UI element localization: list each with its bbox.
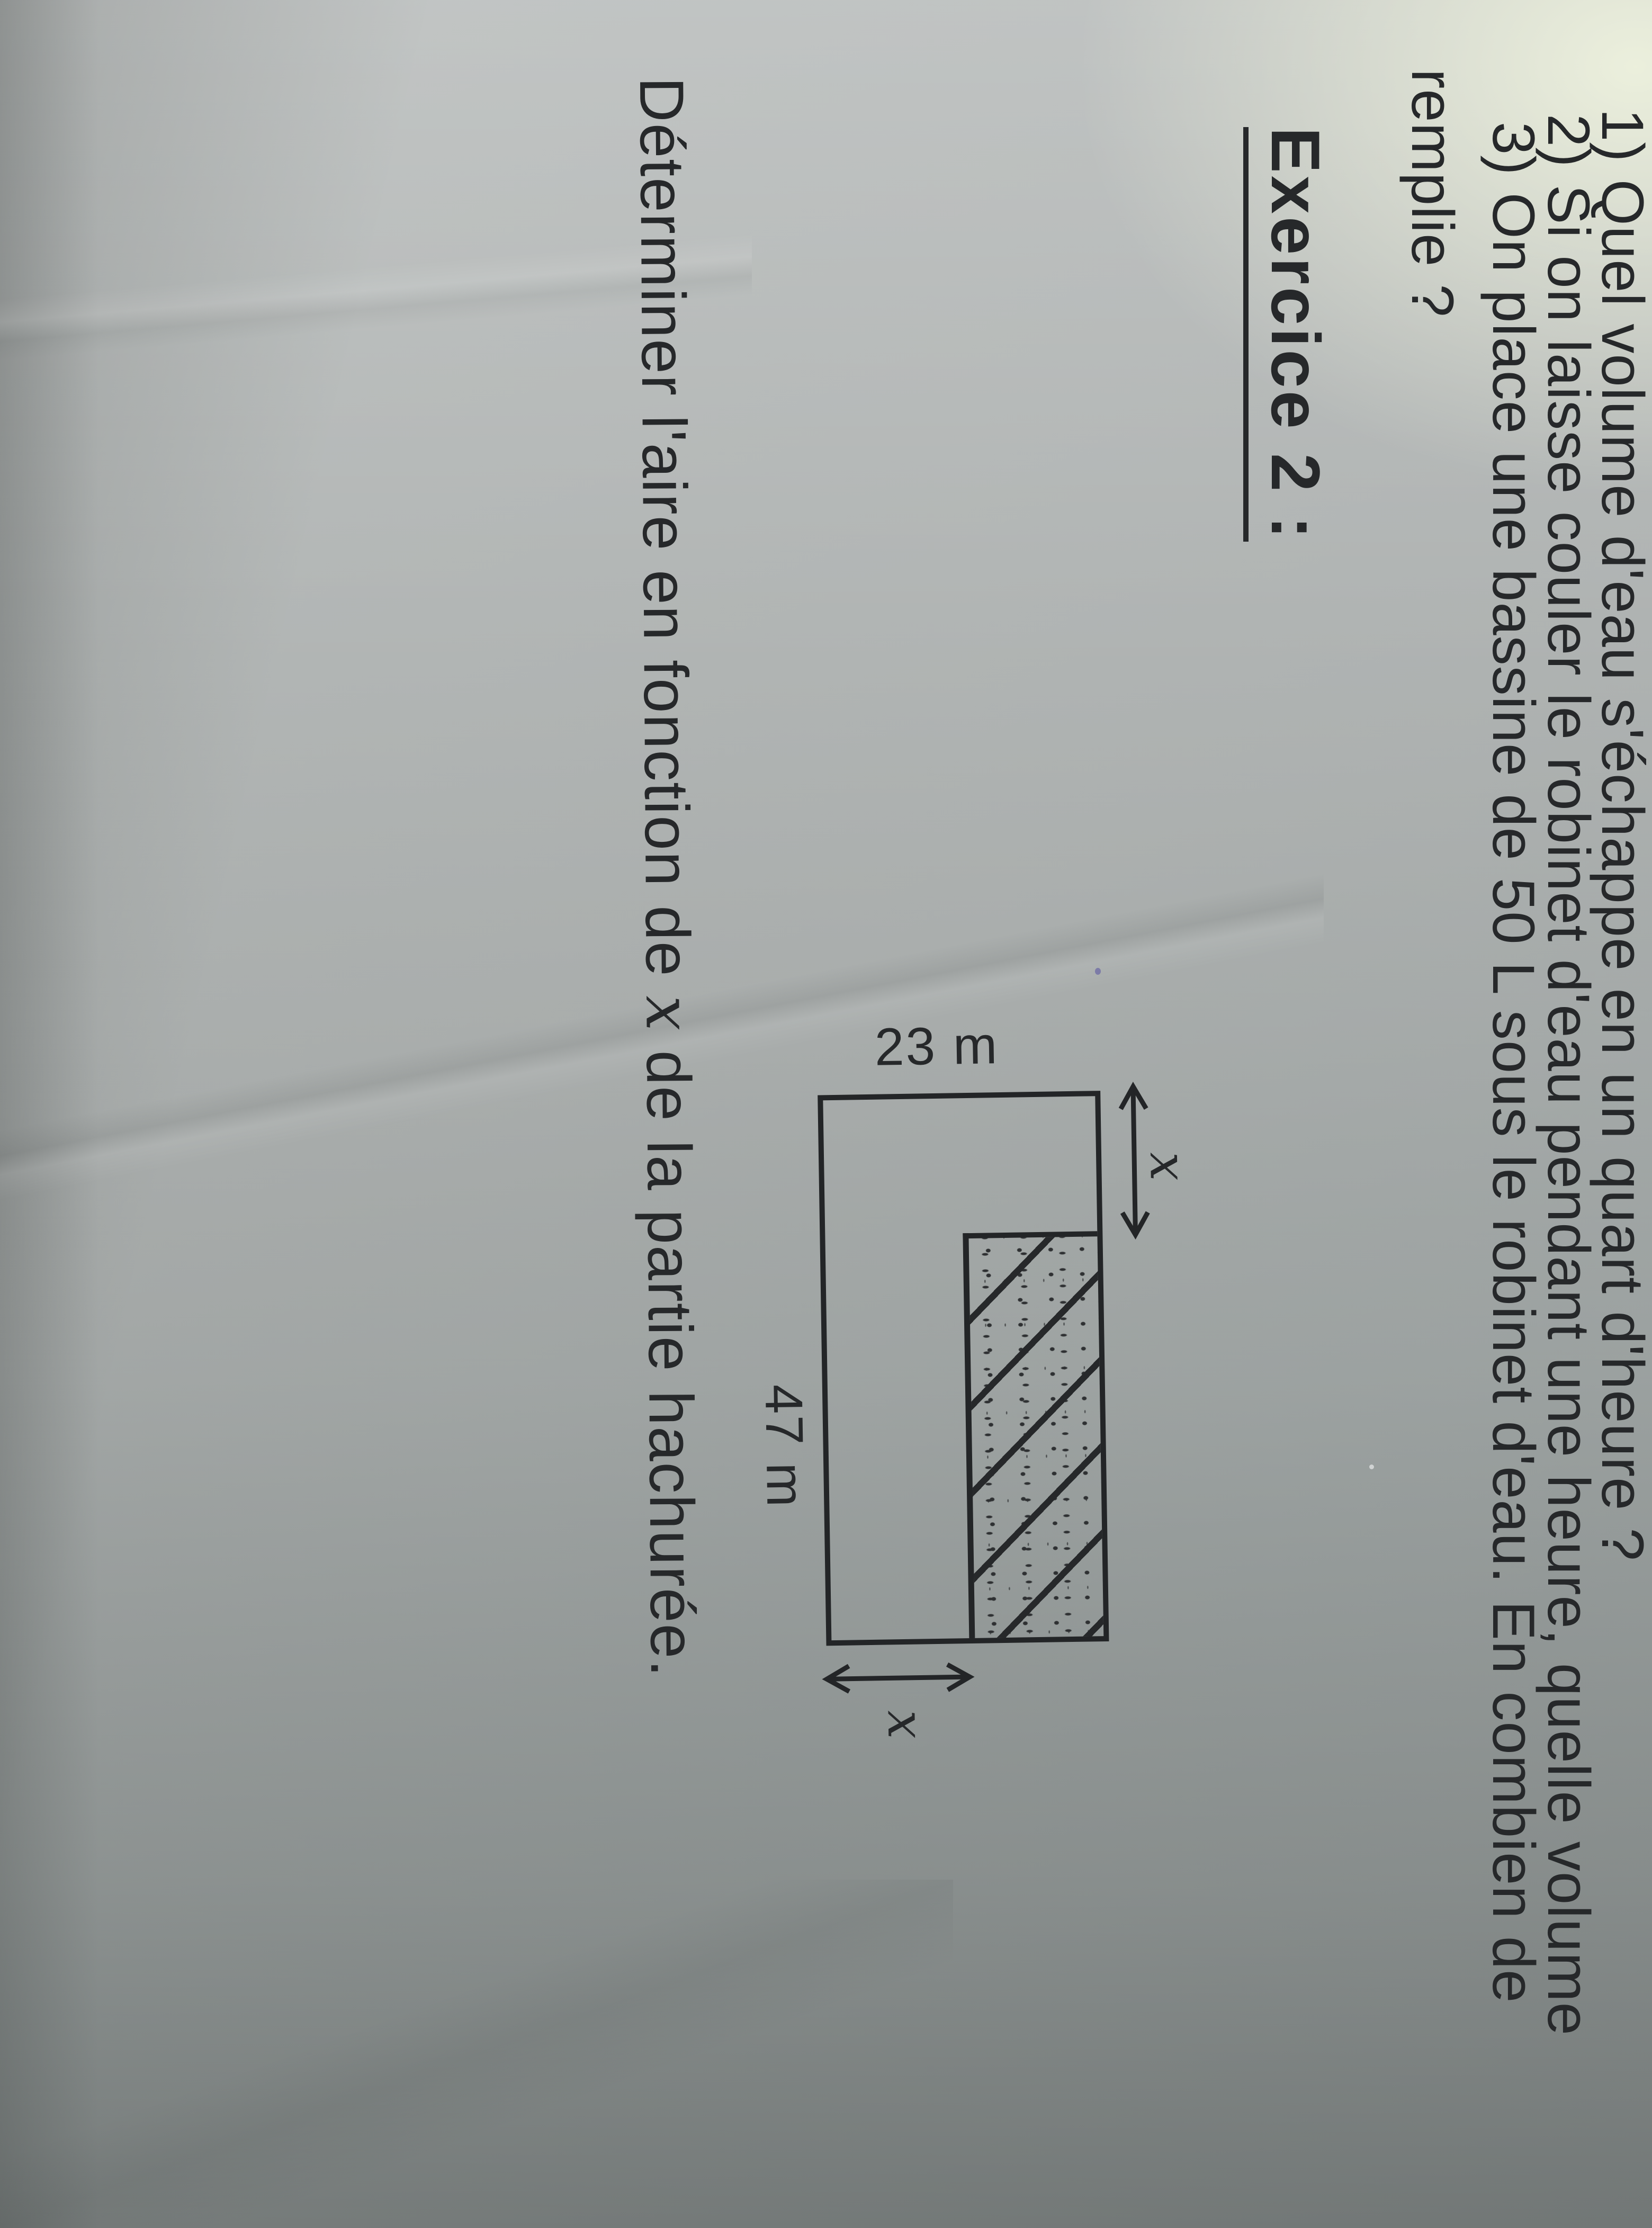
side-length-label-47m: 47 m: [760, 1384, 809, 1501]
question-text-pre: Déterminer l'aire en fonction de: [626, 77, 703, 996]
geometry-figure: 23 m 47 m x x: [752, 1077, 1123, 1772]
gap-height-x-label: x: [877, 1687, 936, 1762]
photo-of-worksheet: 1) Quel volume d'eau s'échappe en un qua…: [0, 0, 1652, 2228]
side-length-label-23m: 23 m: [874, 1024, 991, 1068]
problem-line-3: 3) On place une bassine de 50 L sous le …: [1476, 122, 1550, 2003]
question-text-post: de la partie hachurée.: [633, 1031, 708, 1678]
problem-line-3-continuation: remplie ?: [1395, 69, 1469, 318]
question-variable-x: x: [632, 995, 705, 1032]
question-line: Déterminer l'aire en fonction de x de la…: [624, 77, 710, 1678]
rotated-document-content: 1) Quel volume d'eau s'échappe en un qua…: [0, 0, 1652, 2228]
exercise-heading-text: Exercice 2 :: [1243, 127, 1334, 542]
hatched-region: [963, 1231, 1103, 1638]
gap-width-x-label: x: [1139, 1126, 1198, 1207]
exercise-heading: Exercice 2 :: [1256, 127, 1335, 542]
